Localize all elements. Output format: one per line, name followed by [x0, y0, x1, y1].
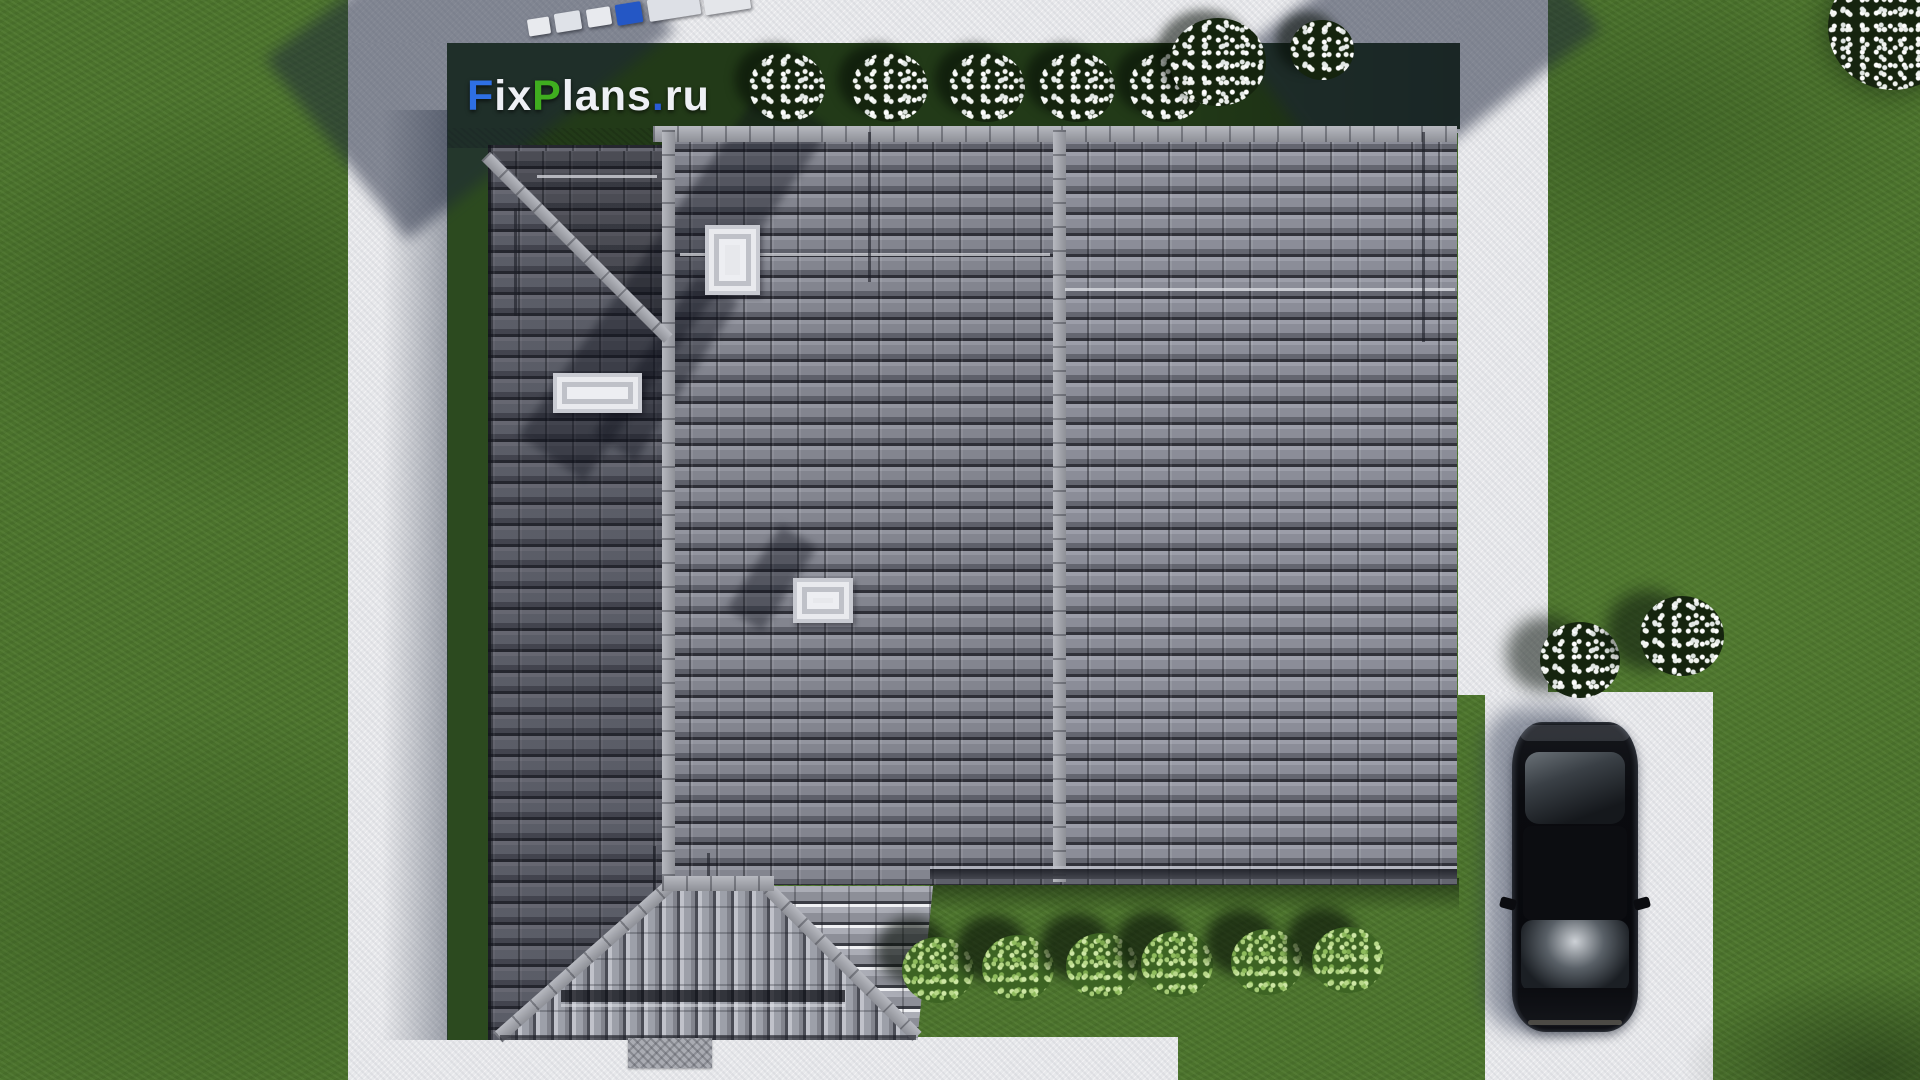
car [1478, 695, 1658, 1045]
logo-part: F [467, 72, 494, 120]
gable-snow-rail [561, 1004, 845, 1007]
watermark-logo: FixPlans.ru [467, 72, 710, 121]
tree-foliage [1828, 0, 1920, 90]
green-bush [1312, 927, 1384, 993]
logo-part: ix [494, 72, 532, 120]
walkway-bottom [348, 1037, 1178, 1080]
gable-wing [497, 880, 933, 1040]
logo-part: ru [665, 72, 710, 120]
house-shadow-left [382, 110, 448, 1040]
doormat [628, 1038, 712, 1068]
skylight [793, 578, 853, 623]
snow-rail [1065, 288, 1455, 291]
flowering-bush [1039, 52, 1115, 122]
cargo-box [527, 16, 551, 36]
roof-rod [868, 132, 871, 282]
car-windshield [1521, 920, 1629, 992]
green-bush [1141, 931, 1213, 997]
logo-part: lans [562, 72, 652, 120]
cargo-box [554, 10, 583, 33]
flowering-bush-right [1640, 596, 1724, 676]
flowering-bush [749, 52, 825, 122]
car-roof-panel [1523, 826, 1627, 920]
green-bush [1066, 933, 1138, 999]
cargo-box-blue [615, 1, 644, 26]
eave-edge [930, 869, 1457, 879]
roof-rod [1422, 132, 1425, 342]
chimney [705, 225, 760, 295]
green-bush [902, 937, 974, 1003]
roof-rod [514, 208, 517, 316]
logo-part: . [652, 72, 665, 120]
snow-rail [537, 175, 657, 178]
scene: FixPlans.ru [0, 0, 1920, 1080]
green-bush [1231, 929, 1303, 995]
flowering-bush-right [1540, 622, 1620, 698]
ridge-cap-vertical-left [662, 130, 675, 882]
cargo-box [586, 6, 613, 28]
flowering-bush-small [1290, 20, 1354, 80]
logo-part: P [532, 72, 562, 120]
car-mirror-right [1633, 896, 1651, 911]
ridge-cap-vertical-right [1053, 130, 1066, 882]
gable-shadow-band [561, 990, 845, 1002]
shadow-grass-corner-bottom-right [1680, 970, 1920, 1080]
green-bush [982, 935, 1054, 1001]
shadow-grass-strip-left [447, 148, 488, 1040]
flowering-bush [852, 52, 928, 122]
car-front-trim [1528, 1020, 1622, 1025]
car-rear-window [1525, 752, 1625, 824]
flowering-bush [949, 52, 1025, 122]
gable-ridge-cap [662, 876, 774, 891]
car-body [1512, 722, 1638, 1032]
flowering-bush-large [1170, 18, 1266, 106]
car-trunk-highlight [1520, 725, 1630, 741]
skylight [553, 373, 642, 413]
roof-right-slope [1060, 128, 1457, 885]
